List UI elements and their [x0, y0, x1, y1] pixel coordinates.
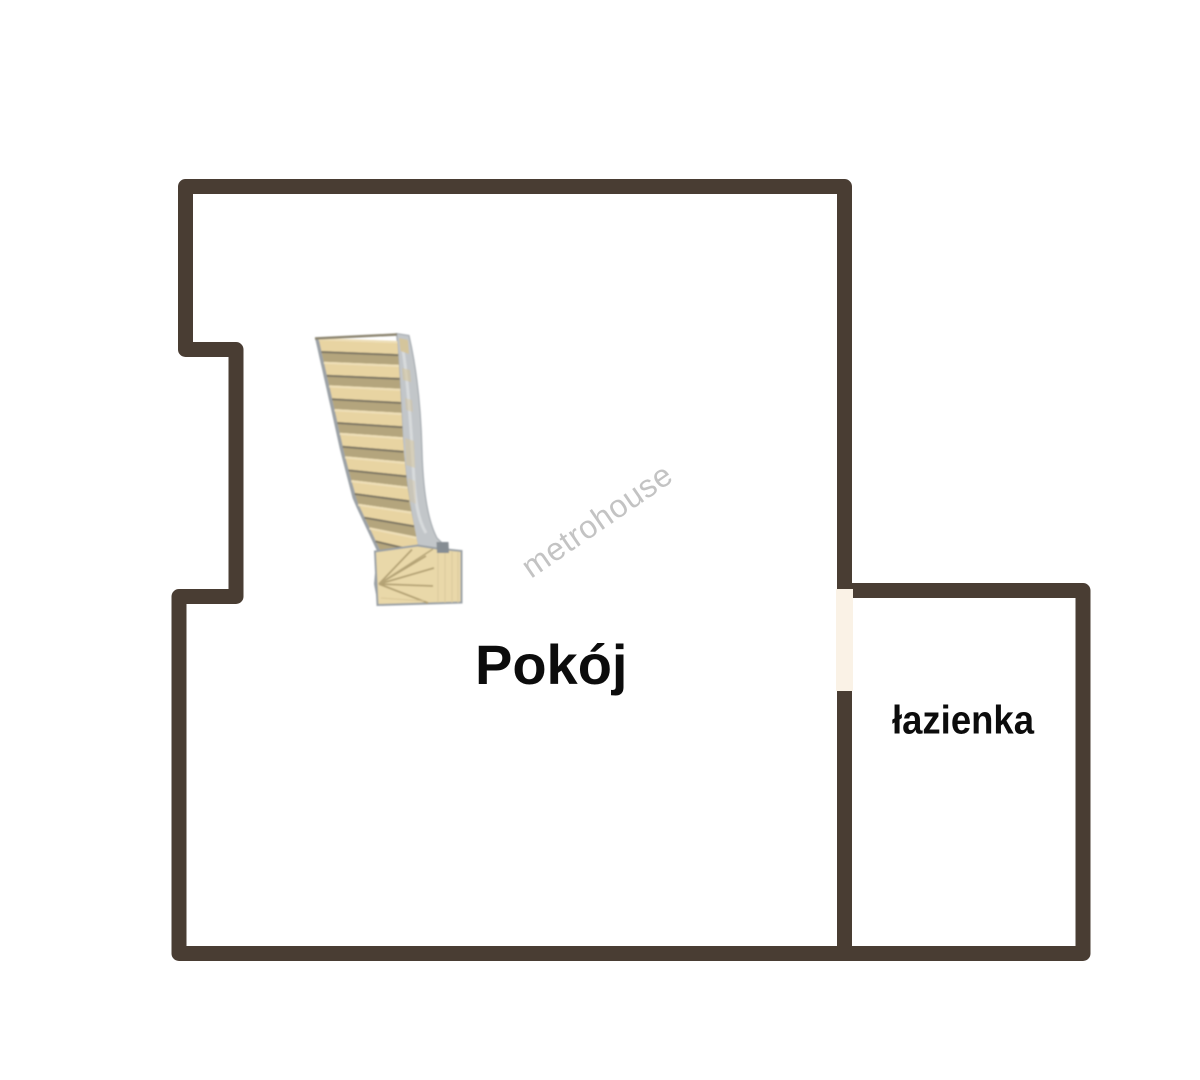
svg-text:metrohouse: metrohouse: [515, 456, 680, 585]
svg-text:łazienka: łazienka: [892, 699, 1035, 743]
svg-text:Pokój: Pokój: [475, 633, 627, 696]
